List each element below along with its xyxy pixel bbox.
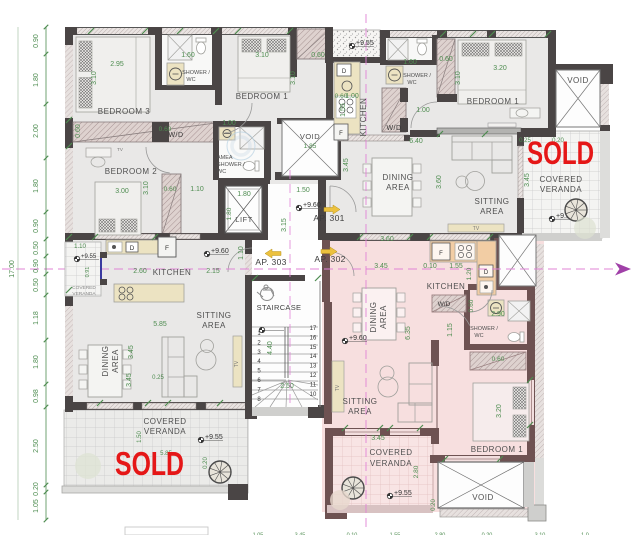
svg-text:COVERED: COVERED	[369, 448, 412, 457]
svg-text:10: 10	[310, 392, 317, 398]
svg-text:1.18: 1.18	[33, 311, 40, 325]
svg-text:3.45: 3.45	[126, 373, 133, 387]
svg-text:BEDROOM 3: BEDROOM 3	[98, 107, 151, 116]
svg-text:SHOWER /: SHOWER /	[217, 162, 245, 168]
svg-text:D: D	[130, 245, 135, 252]
svg-text:0.20: 0.20	[203, 457, 209, 469]
svg-text:3.10: 3.10	[290, 71, 297, 85]
svg-text:0.20: 0.20	[33, 482, 40, 496]
svg-text:W/D: W/D	[386, 125, 401, 132]
svg-text:1.85: 1.85	[304, 143, 317, 150]
svg-text:1.50: 1.50	[137, 431, 143, 443]
svg-text:F: F	[165, 245, 169, 252]
svg-text:3.45: 3.45	[524, 173, 531, 187]
svg-text:1.55: 1.55	[449, 263, 463, 270]
svg-text:AREA: AREA	[386, 183, 410, 192]
svg-text:0.91: 0.91	[85, 267, 91, 278]
svg-text:2.80: 2.80	[413, 465, 420, 478]
svg-text:12: 12	[310, 373, 317, 379]
svg-text:3.20: 3.20	[493, 65, 507, 72]
svg-text:STAIRCASE: STAIRCASE	[257, 303, 302, 312]
svg-text:17: 17	[310, 326, 317, 332]
svg-text:COVERED: COVERED	[539, 175, 582, 184]
svg-text:1.80: 1.80	[226, 207, 233, 220]
svg-text:SITTING: SITTING	[474, 197, 509, 206]
svg-text:AMEA: AMEA	[217, 155, 233, 161]
svg-text:0.60: 0.60	[164, 186, 177, 193]
svg-text:1.00: 1.00	[222, 120, 236, 127]
svg-text:0.90: 0.90	[33, 34, 40, 48]
svg-text:1.80: 1.80	[33, 73, 40, 87]
svg-text:+9.60: +9.60	[349, 335, 367, 342]
svg-text:TV: TV	[234, 360, 240, 367]
svg-text:DINING: DINING	[101, 346, 110, 377]
svg-text:0.60: 0.60	[159, 126, 172, 133]
svg-text:COVERED: COVERED	[143, 417, 186, 426]
svg-text:TV: TV	[473, 226, 480, 232]
svg-text:0.90: 0.90	[33, 259, 40, 273]
svg-text:1.55: 1.55	[340, 103, 347, 117]
svg-text:3.20: 3.20	[496, 404, 503, 418]
svg-text:3.10: 3.10	[455, 71, 462, 85]
svg-text:DINING: DINING	[383, 173, 414, 182]
svg-text:0.60: 0.60	[75, 124, 82, 138]
svg-text:+9.60: +9.60	[303, 202, 321, 209]
svg-text:D: D	[342, 69, 347, 75]
svg-text:SHOWER /: SHOWER /	[182, 70, 210, 76]
svg-text:6.40: 6.40	[409, 138, 423, 145]
svg-text:2.50: 2.50	[33, 439, 40, 453]
svg-text:VERANDA: VERANDA	[540, 185, 582, 194]
svg-text:1.05: 1.05	[33, 499, 40, 513]
svg-text:0.98: 0.98	[33, 389, 40, 403]
svg-text:SOLD: SOLD	[115, 445, 184, 482]
svg-text:13: 13	[310, 364, 317, 370]
svg-text:3.60: 3.60	[436, 175, 443, 189]
svg-text:3.60: 3.60	[380, 236, 394, 243]
svg-text:3.10: 3.10	[255, 52, 269, 59]
svg-text:DINING: DINING	[369, 302, 378, 333]
svg-text:3.45: 3.45	[128, 345, 135, 359]
svg-text:2.60: 2.60	[133, 268, 147, 275]
svg-text:VOID: VOID	[300, 132, 320, 141]
svg-text:3.10: 3.10	[143, 181, 150, 195]
svg-text:3.10: 3.10	[91, 71, 98, 85]
svg-text:TV: TV	[335, 384, 341, 391]
svg-text:1.10: 1.10	[190, 186, 204, 193]
svg-text:+9.55: +9.55	[205, 434, 223, 441]
svg-text:0.60: 0.60	[492, 356, 505, 363]
svg-text:2.50: 2.50	[280, 383, 294, 390]
svg-text:1.80: 1.80	[237, 191, 251, 198]
svg-text:W/D: W/D	[438, 301, 451, 308]
svg-text:3.45: 3.45	[343, 158, 350, 172]
svg-text:1.60: 1.60	[181, 52, 195, 59]
svg-text:BEDROOM 1: BEDROOM 1	[236, 92, 289, 101]
svg-text:1.00: 1.00	[416, 107, 430, 114]
svg-text:0.60: 0.60	[335, 93, 348, 100]
svg-text:KITCHEN: KITCHEN	[153, 268, 192, 277]
svg-text:AP. 301: AP. 301	[313, 213, 344, 223]
svg-text:1.20: 1.20	[466, 267, 473, 280]
svg-text:2.95: 2.95	[110, 61, 124, 68]
svg-text:11: 11	[310, 382, 317, 388]
svg-text:SOLD: SOLD	[527, 135, 594, 171]
svg-text:AREA: AREA	[348, 407, 372, 416]
svg-text:KITCHEN: KITCHEN	[359, 98, 368, 137]
svg-text:D: D	[484, 270, 489, 276]
svg-text:5.85: 5.85	[153, 321, 167, 328]
svg-text:+9.60: +9.60	[211, 248, 229, 255]
svg-text:2.15: 2.15	[206, 268, 220, 275]
svg-text:3.45: 3.45	[374, 263, 388, 270]
svg-text:WC: WC	[217, 169, 226, 175]
svg-text:6.35: 6.35	[405, 326, 412, 340]
svg-text:0.10: 0.10	[423, 263, 437, 270]
svg-text:4.40: 4.40	[267, 341, 274, 355]
svg-text:0.25: 0.25	[152, 375, 164, 381]
svg-text:KITCHEN: KITCHEN	[427, 282, 466, 291]
svg-text:VERANDA: VERANDA	[370, 459, 412, 468]
svg-text:WC: WC	[407, 80, 416, 86]
svg-text:0.60: 0.60	[311, 52, 325, 59]
svg-text:VOID: VOID	[472, 493, 494, 502]
svg-text:1.10: 1.10	[238, 246, 245, 260]
svg-text:SHOWER /: SHOWER /	[403, 73, 431, 79]
svg-text:+9.55: +9.55	[356, 40, 374, 47]
svg-text:16: 16	[310, 335, 317, 341]
svg-text:1.50: 1.50	[296, 187, 310, 194]
svg-text:2.90: 2.90	[491, 311, 505, 318]
svg-text:VERANDA: VERANDA	[72, 291, 96, 297]
svg-text:2.00: 2.00	[33, 124, 40, 138]
svg-text:SHOWER /: SHOWER /	[470, 326, 498, 332]
svg-text:F: F	[439, 251, 443, 257]
svg-text:W/D: W/D	[168, 132, 183, 139]
svg-text:AREA: AREA	[111, 349, 120, 373]
svg-text:COVERED: COVERED	[72, 285, 96, 291]
svg-text:SITTING: SITTING	[342, 397, 377, 406]
svg-text:BEDROOM 1: BEDROOM 1	[467, 97, 520, 106]
svg-text:0.90: 0.90	[33, 219, 40, 233]
svg-text:0.20: 0.20	[431, 499, 437, 511]
svg-text:14: 14	[310, 354, 317, 360]
svg-text:TV: TV	[117, 147, 123, 152]
svg-text:AREA: AREA	[379, 305, 388, 329]
svg-text:WC: WC	[186, 77, 195, 83]
svg-text:0.60: 0.60	[468, 299, 475, 312]
svg-text:1.80: 1.80	[33, 179, 40, 193]
svg-text:AP. 303: AP. 303	[255, 257, 286, 267]
svg-text:17.00: 17.00	[9, 260, 16, 278]
svg-text:1.60: 1.60	[403, 59, 417, 66]
svg-text:BEDROOM 2: BEDROOM 2	[105, 167, 158, 176]
svg-text:LIFT: LIFT	[235, 215, 252, 224]
svg-text:WC: WC	[474, 333, 483, 339]
svg-text:0.50: 0.50	[33, 278, 40, 292]
svg-text:3.45: 3.45	[371, 435, 385, 442]
svg-text:3.15: 3.15	[281, 218, 288, 232]
svg-text:15: 15	[310, 345, 317, 351]
svg-text:AREA: AREA	[202, 321, 226, 330]
svg-text:BEDROOM 1: BEDROOM 1	[471, 445, 524, 454]
svg-text:+9.55: +9.55	[394, 490, 412, 497]
svg-text:VOID: VOID	[567, 76, 589, 85]
svg-text:0.50: 0.50	[33, 241, 40, 255]
svg-text:0.60: 0.60	[439, 56, 453, 63]
svg-text:3.00: 3.00	[115, 188, 129, 195]
svg-text:F: F	[339, 131, 343, 137]
svg-text:VERANDA: VERANDA	[144, 427, 186, 436]
svg-text:1.10: 1.10	[74, 244, 86, 250]
svg-text:1.15: 1.15	[447, 323, 454, 337]
svg-text:SITTING: SITTING	[196, 311, 231, 320]
svg-text:AREA: AREA	[480, 207, 504, 216]
svg-text:+9.55: +9.55	[81, 254, 97, 260]
svg-text:1.80: 1.80	[33, 355, 40, 369]
